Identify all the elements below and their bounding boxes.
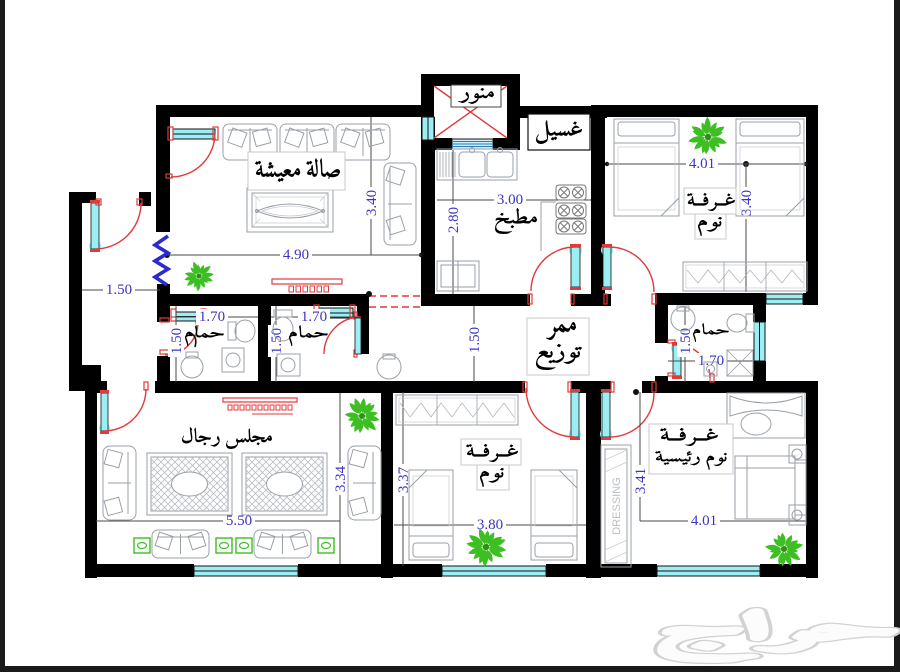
svg-text:3.40: 3.40 bbox=[364, 190, 380, 216]
svg-text:1.70: 1.70 bbox=[301, 309, 327, 325]
svg-text:1.50: 1.50 bbox=[169, 328, 185, 354]
svg-text:2.80: 2.80 bbox=[446, 207, 462, 233]
svg-text:3.00: 3.00 bbox=[497, 192, 523, 208]
svg-text:1.50: 1.50 bbox=[106, 282, 132, 298]
svg-text:3.40: 3.40 bbox=[739, 190, 755, 216]
svg-text:4.01: 4.01 bbox=[691, 513, 717, 529]
svg-text:4.01: 4.01 bbox=[689, 156, 715, 172]
svg-text:1.70: 1.70 bbox=[698, 353, 724, 369]
svg-text:3.41: 3.41 bbox=[633, 468, 649, 494]
svg-text:1.70: 1.70 bbox=[199, 309, 225, 325]
svg-text:1.50: 1.50 bbox=[678, 328, 694, 354]
svg-text:3.34: 3.34 bbox=[333, 465, 349, 492]
svg-text:DRESSING: DRESSING bbox=[611, 477, 623, 534]
svg-text:4.90: 4.90 bbox=[283, 247, 309, 263]
svg-text:1.50: 1.50 bbox=[467, 327, 483, 353]
